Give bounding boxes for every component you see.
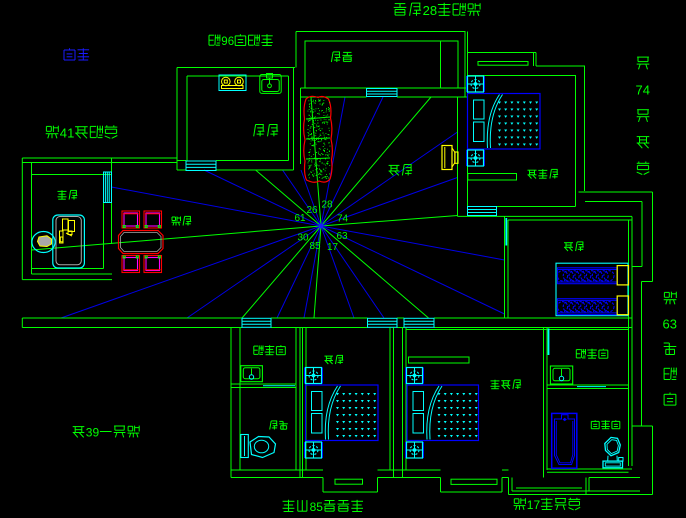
svg-text:74: 74 [337, 214, 349, 225]
svg-text:30: 30 [298, 233, 310, 244]
svg-text:1: 1 [67, 126, 74, 141]
svg-text:9: 9 [93, 426, 100, 440]
svg-text:63: 63 [337, 231, 349, 242]
svg-text:6: 6 [228, 36, 234, 48]
svg-text:61: 61 [295, 213, 307, 224]
svg-text:28: 28 [322, 200, 334, 211]
svg-text:8: 8 [430, 3, 437, 18]
svg-text:5: 5 [316, 500, 323, 514]
svg-text:17: 17 [327, 242, 339, 253]
svg-text:7: 7 [534, 498, 541, 512]
svg-text:74: 74 [636, 82, 650, 97]
svg-text:26: 26 [307, 205, 319, 216]
svg-text:63: 63 [663, 316, 677, 331]
svg-text:4: 4 [60, 126, 67, 141]
svg-text:85: 85 [310, 241, 322, 252]
svg-text:2: 2 [423, 3, 430, 18]
